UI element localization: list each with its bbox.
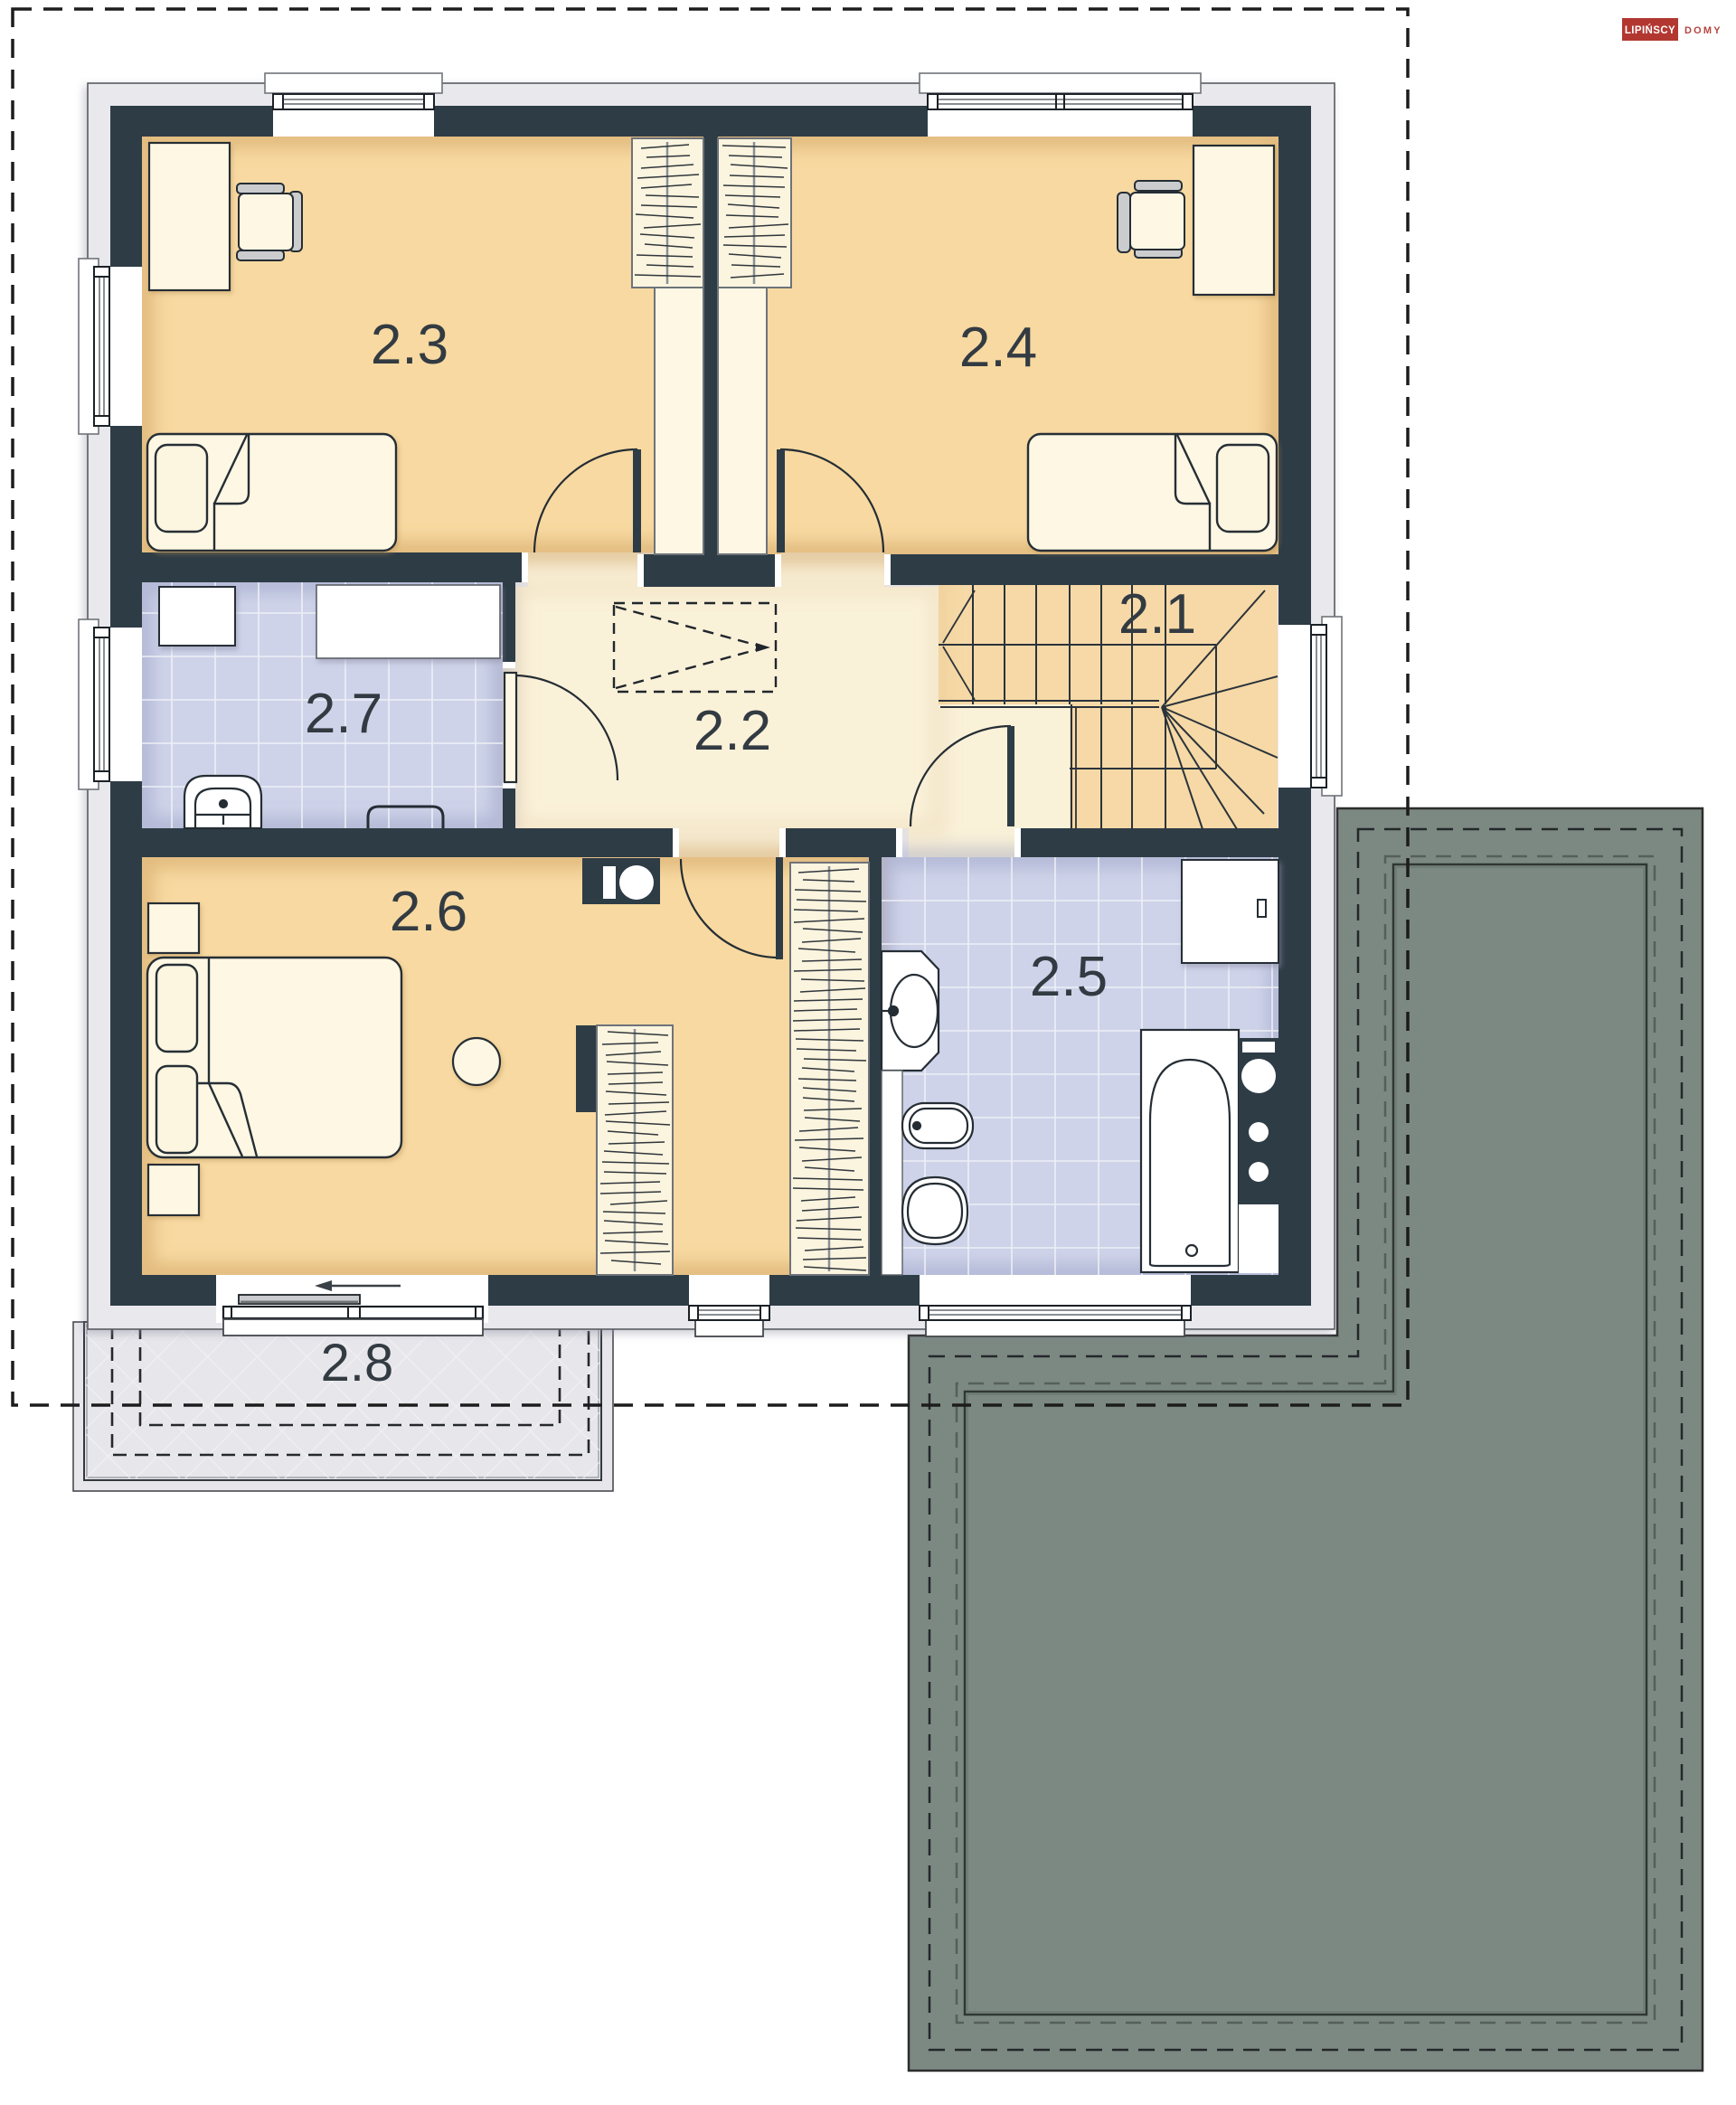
svg-text:2.2: 2.2 <box>693 700 771 762</box>
svg-text:2.7: 2.7 <box>305 683 382 745</box>
svg-text:2.6: 2.6 <box>390 881 467 943</box>
svg-text:2.3: 2.3 <box>371 314 448 376</box>
svg-text:2.4: 2.4 <box>959 316 1037 379</box>
svg-text:DOMY: DOMY <box>1684 25 1722 36</box>
svg-text:LIPIŃSCY: LIPIŃSCY <box>1625 24 1675 36</box>
svg-text:2.8: 2.8 <box>321 1334 394 1392</box>
svg-text:2.5: 2.5 <box>1030 946 1108 1008</box>
svg-text:2.1: 2.1 <box>1118 583 1196 646</box>
